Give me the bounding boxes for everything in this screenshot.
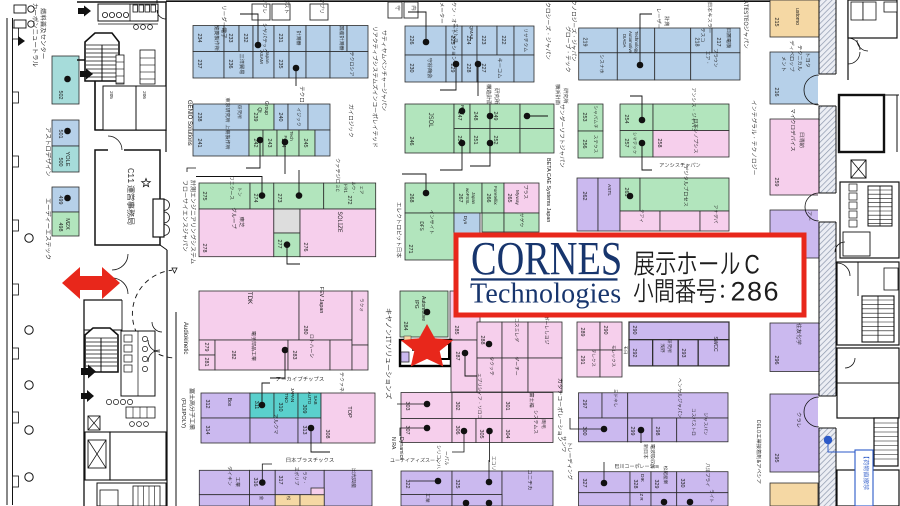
svg-text:IPG: IPG bbox=[413, 300, 419, 309]
svg-text:223: 223 bbox=[480, 36, 486, 45]
svg-text:Automotive: Automotive bbox=[420, 296, 426, 321]
svg-text:ustomo: ustomo bbox=[794, 8, 800, 25]
svg-text:311: 311 bbox=[253, 401, 259, 410]
svg-text:290: 290 bbox=[602, 326, 608, 335]
svg-text:314: 314 bbox=[204, 426, 210, 435]
svg-text:Technologies: Technologies bbox=[470, 279, 621, 310]
svg-text:248: 248 bbox=[472, 112, 478, 121]
svg-text:308: 308 bbox=[324, 430, 330, 439]
svg-text:Z R: Z R bbox=[639, 493, 644, 500]
svg-text:328: 328 bbox=[632, 480, 638, 489]
svg-text:Foretellix: Foretellix bbox=[493, 186, 498, 205]
svg-text:500: 500 bbox=[57, 158, 63, 167]
svg-text:246: 246 bbox=[408, 137, 414, 146]
svg-text:282: 282 bbox=[230, 351, 236, 360]
svg-text:222: 222 bbox=[500, 36, 506, 45]
svg-text:Technology: Technology bbox=[634, 31, 639, 54]
svg-text:262: 262 bbox=[581, 192, 587, 201]
svg-text:M2X: M2X bbox=[64, 218, 70, 230]
svg-text:325: 325 bbox=[454, 480, 460, 489]
svg-text:SAB: SAB bbox=[313, 395, 318, 404]
svg-text:258: 258 bbox=[656, 139, 662, 148]
svg-text:ASAM: ASAM bbox=[258, 50, 264, 64]
svg-text:240: 240 bbox=[277, 113, 283, 122]
svg-text:251: 251 bbox=[472, 136, 478, 145]
svg-text:Japan: Japan bbox=[264, 50, 270, 63]
svg-text:289: 289 bbox=[579, 328, 585, 337]
svg-text:310: 310 bbox=[277, 403, 283, 412]
svg-text:292: 292 bbox=[631, 349, 637, 358]
svg-text:267: 267 bbox=[457, 194, 463, 203]
svg-text:265: 265 bbox=[506, 194, 512, 203]
svg-text:293: 293 bbox=[680, 349, 686, 358]
svg-text:268: 268 bbox=[408, 194, 414, 203]
svg-text:279: 279 bbox=[203, 343, 209, 352]
svg-text:257: 257 bbox=[623, 139, 629, 148]
svg-text:SWCC: SWCC bbox=[712, 336, 718, 352]
svg-text:272: 272 bbox=[346, 196, 352, 205]
svg-text:JAPAN: JAPAN bbox=[290, 388, 295, 402]
svg-text:231: 231 bbox=[277, 34, 283, 43]
svg-text:237: 237 bbox=[196, 60, 202, 69]
svg-text:299: 299 bbox=[629, 427, 635, 436]
svg-text:259: 259 bbox=[773, 178, 779, 187]
svg-text:228: 228 bbox=[465, 64, 471, 73]
svg-text:274: 274 bbox=[252, 194, 258, 203]
svg-text:Group: Group bbox=[263, 101, 269, 115]
svg-text:316: 316 bbox=[252, 478, 258, 487]
svg-text:FEV Japan: FEV Japan bbox=[318, 287, 324, 314]
svg-text:205: 205 bbox=[109, 91, 114, 99]
svg-text:309: 309 bbox=[301, 405, 307, 414]
svg-text:266: 266 bbox=[485, 194, 491, 203]
svg-text:217: 217 bbox=[715, 38, 721, 47]
svg-text:273: 273 bbox=[276, 194, 282, 203]
svg-text:290: 290 bbox=[631, 326, 637, 335]
svg-text:278: 278 bbox=[201, 244, 207, 253]
svg-text:499: 499 bbox=[57, 196, 63, 205]
svg-text:218: 218 bbox=[694, 38, 700, 47]
svg-text:281: 281 bbox=[203, 358, 209, 367]
svg-text:283: 283 bbox=[291, 351, 297, 360]
svg-text:215: 215 bbox=[773, 18, 779, 27]
svg-text:329: 329 bbox=[653, 480, 659, 489]
svg-text:317: 317 bbox=[277, 476, 283, 485]
svg-text:298: 298 bbox=[654, 427, 660, 436]
svg-text:307: 307 bbox=[404, 426, 410, 435]
svg-text:DIADA: DIADA bbox=[622, 34, 627, 47]
svg-text:206: 206 bbox=[142, 91, 147, 99]
svg-text:285: 285 bbox=[453, 326, 459, 335]
svg-text:304: 304 bbox=[504, 430, 510, 439]
svg-text:313: 313 bbox=[301, 426, 307, 435]
svg-text:254: 254 bbox=[623, 115, 629, 124]
svg-text:woFSSL: woFSSL bbox=[465, 188, 470, 205]
svg-text:232: 232 bbox=[242, 34, 248, 43]
svg-text:BETA CAE Systems Japan: BETA CAE Systems Japan bbox=[545, 158, 551, 222]
svg-text:GENIO Solutions: GENIO Solutions bbox=[186, 100, 192, 146]
svg-text:226: 226 bbox=[408, 36, 414, 45]
svg-text:Myway: Myway bbox=[514, 190, 520, 206]
svg-text:216: 216 bbox=[773, 88, 779, 97]
svg-text:239: 239 bbox=[252, 113, 258, 122]
svg-text:243: 243 bbox=[266, 139, 272, 148]
svg-text:245: 245 bbox=[302, 139, 308, 148]
svg-text:219: 219 bbox=[582, 38, 588, 47]
svg-text:QMAIL: QMAIL bbox=[468, 26, 474, 41]
svg-text:TNO: TNO bbox=[284, 393, 289, 403]
svg-text:288: 288 bbox=[479, 336, 485, 345]
svg-text:284: 284 bbox=[402, 322, 408, 331]
svg-text:291: 291 bbox=[579, 356, 585, 365]
svg-text:N RA: N RA bbox=[390, 437, 396, 450]
svg-text:Qt: Qt bbox=[256, 107, 262, 113]
svg-text:TDK: TDK bbox=[246, 292, 253, 305]
svg-text:Dyn: Dyn bbox=[462, 216, 468, 225]
svg-text:498: 498 bbox=[57, 223, 63, 232]
svg-text:296: 296 bbox=[773, 356, 779, 365]
svg-text:235: 235 bbox=[277, 60, 283, 69]
svg-text:277: 277 bbox=[276, 240, 282, 249]
svg-text:286: 286 bbox=[731, 277, 781, 307]
svg-text:233: 233 bbox=[227, 34, 233, 43]
svg-text:238: 238 bbox=[196, 113, 202, 122]
svg-text:Japan: Japan bbox=[471, 192, 476, 205]
svg-text:330: 330 bbox=[679, 479, 685, 488]
svg-text:295: 295 bbox=[773, 454, 779, 463]
svg-text:DIK: DIK bbox=[639, 474, 645, 483]
svg-text:241: 241 bbox=[196, 139, 202, 148]
svg-text:Tech: Tech bbox=[289, 131, 294, 141]
svg-text:275: 275 bbox=[201, 192, 207, 201]
svg-text:280: 280 bbox=[302, 326, 308, 335]
svg-text:YOLE: YOLE bbox=[64, 152, 70, 167]
svg-text:301: 301 bbox=[504, 402, 510, 411]
svg-text:271: 271 bbox=[407, 245, 413, 254]
svg-text:287: 287 bbox=[454, 352, 460, 361]
svg-text:300: 300 bbox=[581, 427, 587, 436]
svg-text:502: 502 bbox=[57, 91, 63, 100]
svg-text:ASTL: ASTL bbox=[606, 184, 612, 196]
svg-text:253: 253 bbox=[581, 113, 587, 122]
svg-text:230: 230 bbox=[408, 64, 414, 73]
svg-text:297: 297 bbox=[581, 400, 587, 409]
svg-text:Automotive: Automotive bbox=[628, 31, 633, 54]
svg-text:256: 256 bbox=[581, 140, 587, 149]
svg-text:303: 303 bbox=[404, 402, 410, 411]
svg-text:312: 312 bbox=[204, 400, 210, 409]
svg-text:501: 501 bbox=[57, 130, 63, 139]
svg-text:305: 305 bbox=[478, 430, 484, 439]
svg-text:322: 322 bbox=[404, 480, 410, 489]
svg-text:AUTO: AUTO bbox=[307, 392, 312, 405]
svg-text:Box: Box bbox=[226, 398, 232, 407]
svg-text:276: 276 bbox=[302, 243, 308, 252]
svg-text:Dynamics: Dynamics bbox=[398, 437, 404, 460]
svg-text:(FUJIPOLY): (FUJIPOLY) bbox=[180, 398, 186, 428]
svg-text:327: 327 bbox=[581, 479, 587, 488]
svg-text:Audiokinetic: Audiokinetic bbox=[182, 322, 188, 354]
svg-text:TOP: TOP bbox=[346, 406, 352, 418]
svg-text:306: 306 bbox=[454, 426, 460, 435]
svg-text:302: 302 bbox=[454, 402, 460, 411]
svg-text:236: 236 bbox=[227, 60, 233, 69]
svg-text:234: 234 bbox=[196, 34, 202, 43]
